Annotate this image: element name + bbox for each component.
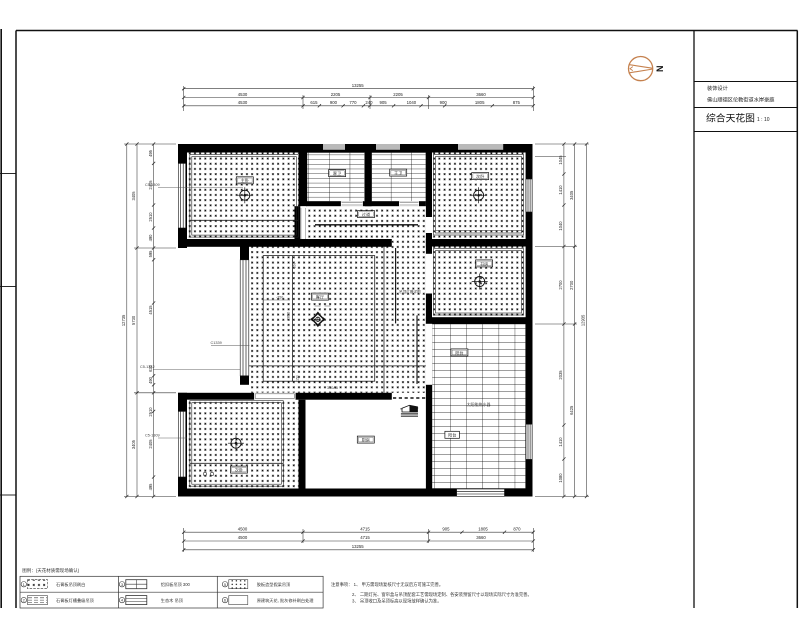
svg-text:340A6: 340A6 xyxy=(327,386,338,390)
svg-text:875: 875 xyxy=(513,100,521,105)
svg-text:过道: 过道 xyxy=(362,211,371,218)
svg-text:石膏板灯槽叠级吊顶: 石膏板灯槽叠级吊顶 xyxy=(56,597,95,604)
svg-text:2700: 2700 xyxy=(558,280,563,290)
svg-text:C1339: C1339 xyxy=(211,341,222,345)
svg-text:2035: 2035 xyxy=(558,370,563,380)
svg-text:吊顶灯槽详图: 吊顶灯槽详图 xyxy=(399,289,421,294)
svg-text:13255: 13255 xyxy=(352,544,365,549)
svg-text:客卫: 客卫 xyxy=(333,170,341,177)
svg-text:次卧: 次卧 xyxy=(476,173,484,180)
svg-text:2405: 2405 xyxy=(148,439,153,449)
svg-text:4715: 4715 xyxy=(360,535,370,540)
svg-text:2、 二期灯光、窗帘盒与吊顶配套工艺需现场定制、各安装预留尺: 2、 二期灯光、窗帘盒与吊顶配套工艺需现场定制、各安装预留尺寸以现场实际尺寸为准… xyxy=(352,591,532,598)
svg-text:阳台: 阳台 xyxy=(455,349,463,356)
svg-text:太阳能热水器: 太阳能热水器 xyxy=(467,401,491,407)
svg-text:客厅: 客厅 xyxy=(316,294,324,301)
svg-text:1080: 1080 xyxy=(558,473,563,483)
svg-text:1410: 1410 xyxy=(558,437,563,447)
svg-text:2510: 2510 xyxy=(148,212,153,222)
svg-text:4500: 4500 xyxy=(238,535,248,540)
svg-text:厨房: 厨房 xyxy=(362,437,370,444)
svg-text:原建筑天花, 批灰修补刷白处理: 原建筑天花, 批灰修补刷白处理 xyxy=(257,597,315,604)
svg-text:生态木 吊顶: 生态木 吊顶 xyxy=(161,597,184,604)
svg-text:阳台: 阳台 xyxy=(448,432,456,439)
svg-text:3405: 3405 xyxy=(131,191,136,201)
svg-text:1805: 1805 xyxy=(478,526,488,531)
svg-text:胶板造型假梁吊顶: 胶板造型假梁吊顶 xyxy=(257,581,291,588)
svg-text:595: 595 xyxy=(148,250,153,258)
svg-text:石膏板吊顶刷白: 石膏板吊顶刷白 xyxy=(56,581,85,588)
svg-text:装饰设计: 装饰设计 xyxy=(707,84,728,92)
svg-text:铝扣板吊顶 300: 铝扣板吊顶 300 xyxy=(161,581,191,588)
svg-text:4500: 4500 xyxy=(238,526,248,531)
svg-text:主卫: 主卫 xyxy=(394,170,402,176)
svg-text:490: 490 xyxy=(148,376,153,384)
svg-text:4515: 4515 xyxy=(148,305,153,315)
svg-text:495: 495 xyxy=(148,149,153,157)
svg-text:150: 150 xyxy=(296,375,300,381)
svg-text:490: 490 xyxy=(148,234,153,242)
svg-text:4715: 4715 xyxy=(360,526,370,531)
svg-text:1805: 1805 xyxy=(475,100,485,105)
svg-text:C5-1309: C5-1309 xyxy=(145,434,160,438)
svg-text:书房: 书房 xyxy=(480,260,488,267)
svg-text:905: 905 xyxy=(380,100,388,105)
svg-text:770: 770 xyxy=(349,100,357,105)
svg-text:2850: 2850 xyxy=(287,312,291,320)
svg-text:240: 240 xyxy=(365,100,373,105)
svg-text:-350: -350 xyxy=(276,296,283,300)
svg-text:图例：(天花材质需现场确认): 图例：(天花材质需现场确认) xyxy=(22,567,79,574)
svg-text:1040: 1040 xyxy=(558,221,563,231)
svg-text:905: 905 xyxy=(442,526,450,531)
svg-text:2510: 2510 xyxy=(148,407,153,417)
svg-text:次卧: 次卧 xyxy=(235,467,243,474)
svg-text:12735: 12735 xyxy=(121,314,126,326)
svg-text:12935: 12935 xyxy=(581,314,586,326)
svg-text:佛山顺德区伦教街道水岸豪庭: 佛山顺德区伦教街道水岸豪庭 xyxy=(707,96,774,104)
svg-text:1045: 1045 xyxy=(558,155,563,165)
svg-text:主卧: 主卧 xyxy=(241,177,249,184)
svg-text:3405: 3405 xyxy=(569,190,574,200)
svg-text:4530: 4530 xyxy=(238,100,248,105)
svg-text:13255: 13255 xyxy=(352,83,365,88)
svg-text:1040: 1040 xyxy=(407,100,417,105)
svg-text:2700: 2700 xyxy=(569,280,574,290)
svg-text:620: 620 xyxy=(148,364,153,372)
svg-text:2205: 2205 xyxy=(331,92,341,97)
svg-text:900: 900 xyxy=(330,100,338,105)
svg-text:3660: 3660 xyxy=(476,535,486,540)
svg-text:4530: 4530 xyxy=(238,92,248,97)
svg-text:1410: 1410 xyxy=(558,185,563,195)
svg-text:150: 150 xyxy=(293,263,297,269)
svg-text:2405: 2405 xyxy=(148,180,153,190)
svg-text:1 : 10: 1 : 10 xyxy=(757,117,770,123)
svg-text:6425: 6425 xyxy=(569,405,574,415)
svg-text:615: 615 xyxy=(310,100,318,105)
svg-text:870: 870 xyxy=(513,526,521,531)
svg-text:2205: 2205 xyxy=(393,92,403,97)
svg-text:5730: 5730 xyxy=(131,315,136,325)
svg-text:3405: 3405 xyxy=(131,439,136,449)
svg-text:注意事项： 1、 甲方需现场复核尺寸无误后方可施工完善。: 注意事项： 1、 甲方需现场复核尺寸无误后方可施工完善。 xyxy=(331,581,443,588)
svg-text:900: 900 xyxy=(440,100,448,105)
svg-text:N: N xyxy=(654,66,664,73)
svg-text:3、 吊顶收口及吊顶标高以现场放样确认为准。: 3、 吊顶收口及吊顶标高以现场放样确认为准。 xyxy=(352,597,442,604)
svg-text:综合天花图: 综合天花图 xyxy=(706,111,755,124)
svg-text:3660: 3660 xyxy=(476,92,486,97)
svg-text:495: 495 xyxy=(148,483,153,491)
